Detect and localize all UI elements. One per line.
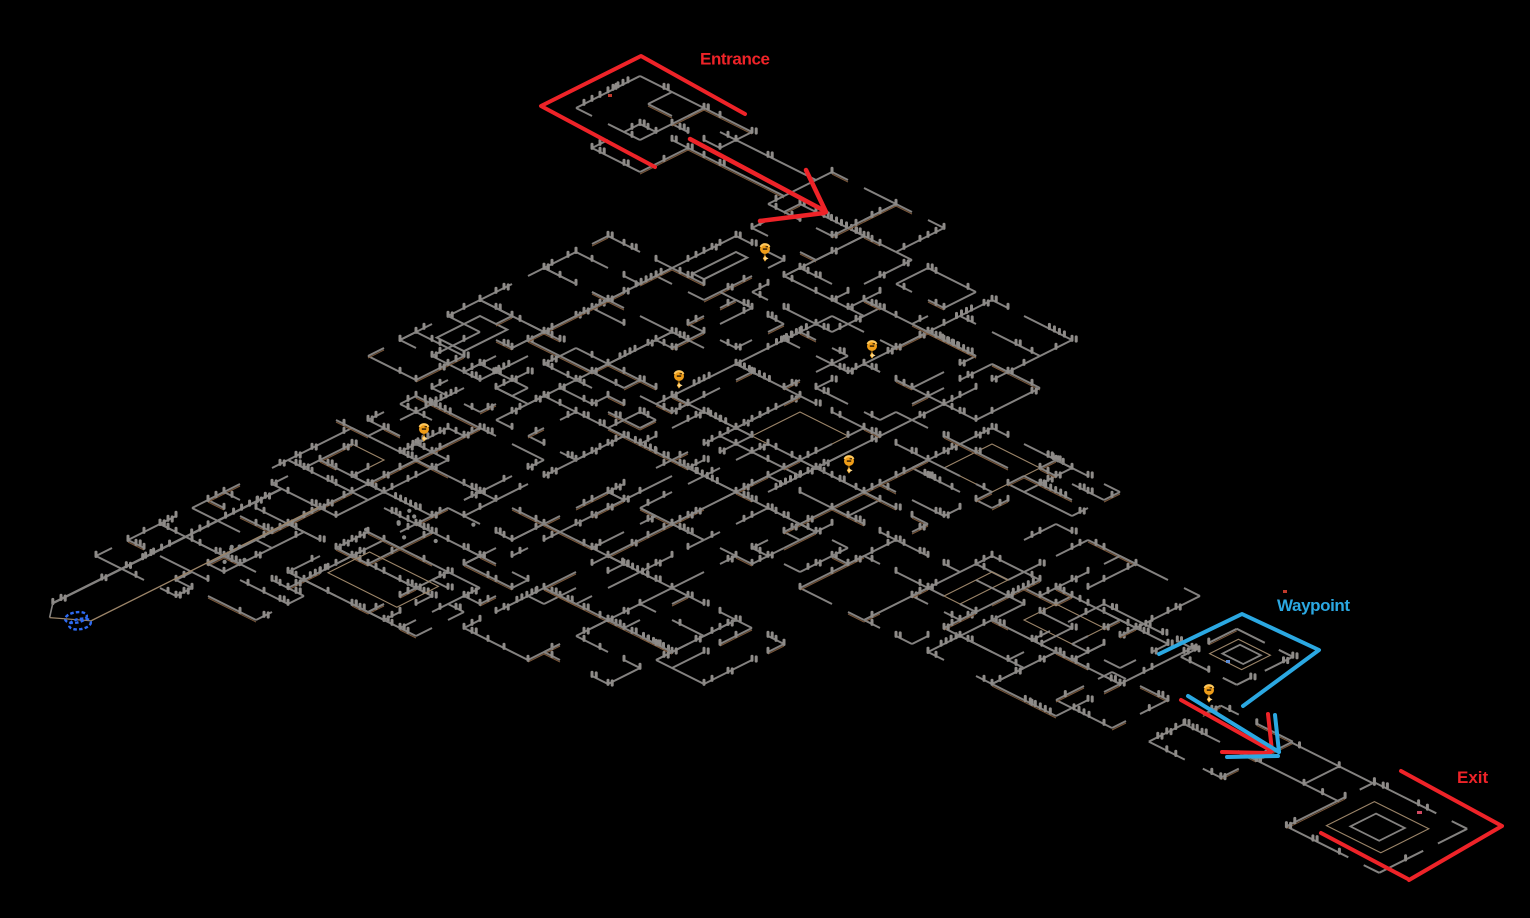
svg-text:Entrance: Entrance <box>700 50 770 69</box>
svg-text:Waypoint: Waypoint <box>1277 596 1350 615</box>
svg-text:Exit: Exit <box>1457 768 1489 787</box>
